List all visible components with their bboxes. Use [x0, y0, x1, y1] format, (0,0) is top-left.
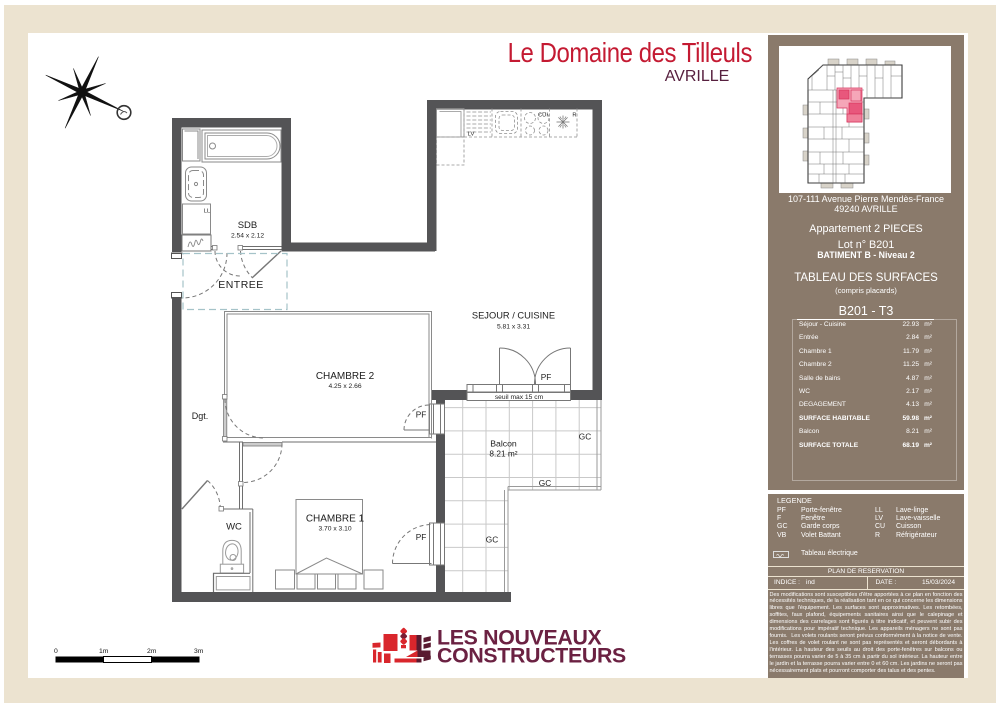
svg-text:LV: LV [468, 132, 475, 138]
svg-text:CONSTRUCTEURS: CONSTRUCTEURS [437, 644, 626, 668]
svg-text:WC: WC [226, 522, 242, 533]
svg-text:1m: 1m [99, 648, 109, 655]
svg-text:GC: GC [539, 478, 551, 488]
svg-text:0: 0 [54, 648, 58, 655]
svg-text:2m: 2m [147, 648, 157, 655]
svg-text:LL: LL [204, 209, 211, 215]
svg-text:ENTREE: ENTREE [218, 279, 264, 291]
svg-text:3m: 3m [194, 648, 204, 655]
svg-text:Balcon: Balcon [490, 439, 517, 449]
svg-text:SEJOUR / CUISINE: SEJOUR / CUISINE [472, 311, 555, 321]
svg-text:5.81 x 3.31: 5.81 x 3.31 [497, 324, 530, 331]
svg-text:8.21 m²: 8.21 m² [489, 449, 517, 459]
svg-text:CHAMBRE 1: CHAMBRE 1 [306, 514, 365, 525]
svg-text:CUI: CUI [538, 113, 548, 119]
svg-text:PF: PF [416, 532, 427, 542]
svg-text:R: R [572, 113, 576, 119]
svg-text:4.25 x 2.66: 4.25 x 2.66 [328, 383, 361, 390]
svg-text:seuil max 15 cm: seuil max 15 cm [495, 394, 544, 401]
svg-text:PF: PF [541, 372, 552, 382]
svg-text:Dgt.: Dgt. [192, 411, 209, 421]
svg-text:CHAMBRE 2: CHAMBRE 2 [316, 371, 375, 382]
svg-text:GC: GC [579, 432, 591, 442]
svg-text:2.54 x 2.12: 2.54 x 2.12 [231, 233, 264, 240]
svg-text:PF: PF [416, 410, 427, 420]
svg-text:3.70 x 3.10: 3.70 x 3.10 [318, 526, 351, 533]
svg-text:SDB: SDB [238, 220, 258, 231]
svg-text:GC: GC [486, 535, 498, 545]
